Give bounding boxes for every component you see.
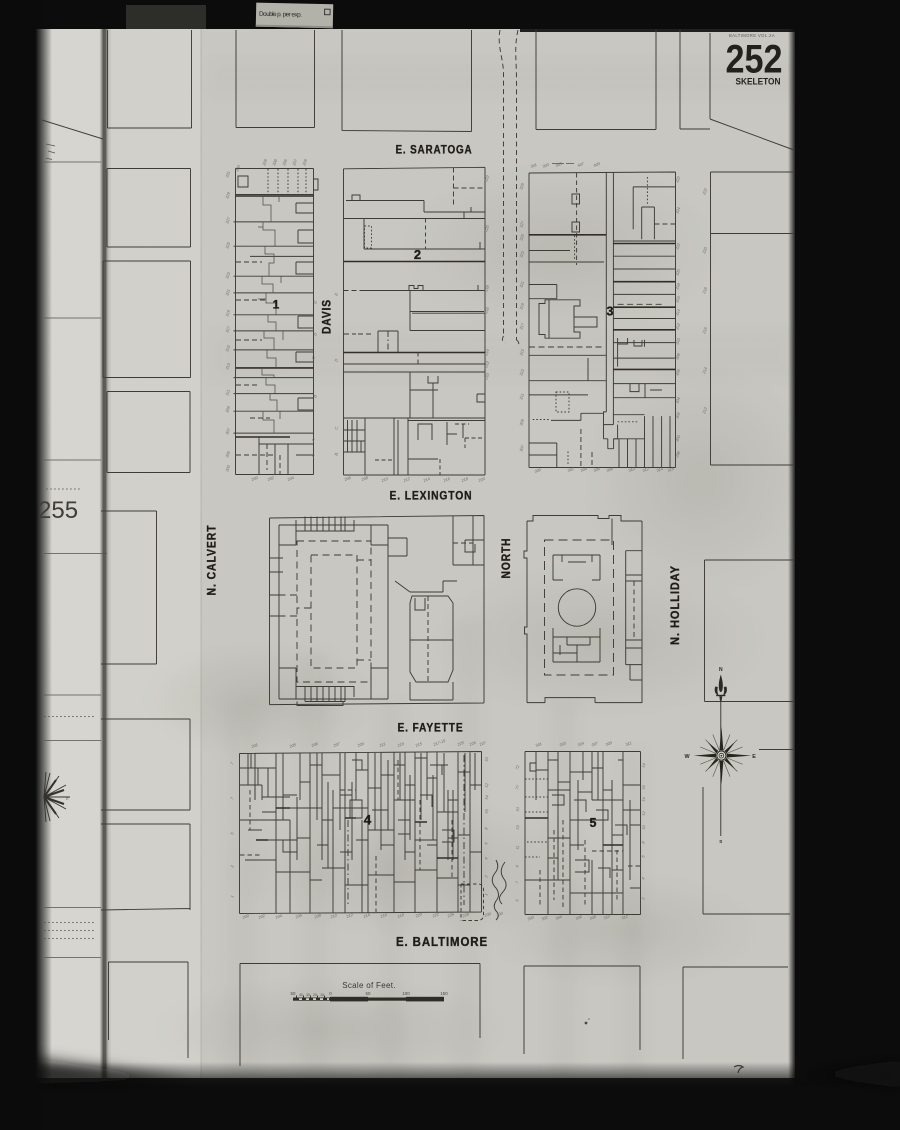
svg-text:N: N bbox=[719, 667, 723, 673]
svg-text:E. BALTIMORE: E. BALTIMORE bbox=[396, 934, 488, 949]
svg-text:E. SARATOGA: E. SARATOGA bbox=[396, 143, 473, 157]
svg-text:5: 5 bbox=[590, 816, 597, 830]
svg-text:S: S bbox=[719, 839, 722, 844]
svg-text:2: 2 bbox=[414, 247, 421, 262]
svg-text:E: E bbox=[752, 754, 756, 760]
svg-text:30: 30 bbox=[306, 993, 310, 997]
svg-text:4: 4 bbox=[364, 813, 372, 828]
svg-text:N. HOLLIDAY: N. HOLLIDAY bbox=[670, 565, 682, 645]
svg-text:100: 100 bbox=[402, 991, 410, 996]
svg-text:10: 10 bbox=[320, 993, 324, 997]
svg-text:150: 150 bbox=[440, 991, 448, 996]
svg-text:Double p. per exp.: Double p. per exp. bbox=[259, 11, 302, 19]
svg-text:N. CALVERT: N. CALVERT bbox=[207, 525, 219, 596]
svg-text:20: 20 bbox=[313, 993, 317, 997]
svg-text:255: 255 bbox=[38, 497, 78, 524]
svg-text:E: E bbox=[66, 796, 69, 801]
svg-text:Scale of Feet.: Scale of Feet. bbox=[342, 981, 396, 990]
svg-text:SKELETON: SKELETON bbox=[736, 77, 781, 87]
svg-text:50: 50 bbox=[366, 991, 371, 996]
svg-text:DAVIS: DAVIS bbox=[322, 299, 334, 334]
svg-text:BALTIMORE VOL.2A: BALTIMORE VOL.2A bbox=[729, 33, 775, 38]
svg-text:50: 50 bbox=[291, 991, 296, 996]
svg-text:NORTH: NORTH bbox=[501, 538, 513, 579]
svg-text:40: 40 bbox=[299, 993, 303, 997]
svg-text:3: 3 bbox=[607, 305, 614, 319]
svg-text:E. FAYETTE: E. FAYETTE bbox=[398, 721, 464, 735]
svg-text:1: 1 bbox=[273, 298, 280, 312]
svg-text:252: 252 bbox=[726, 38, 783, 82]
svg-text:E. LEXINGTON: E. LEXINGTON bbox=[390, 489, 473, 503]
